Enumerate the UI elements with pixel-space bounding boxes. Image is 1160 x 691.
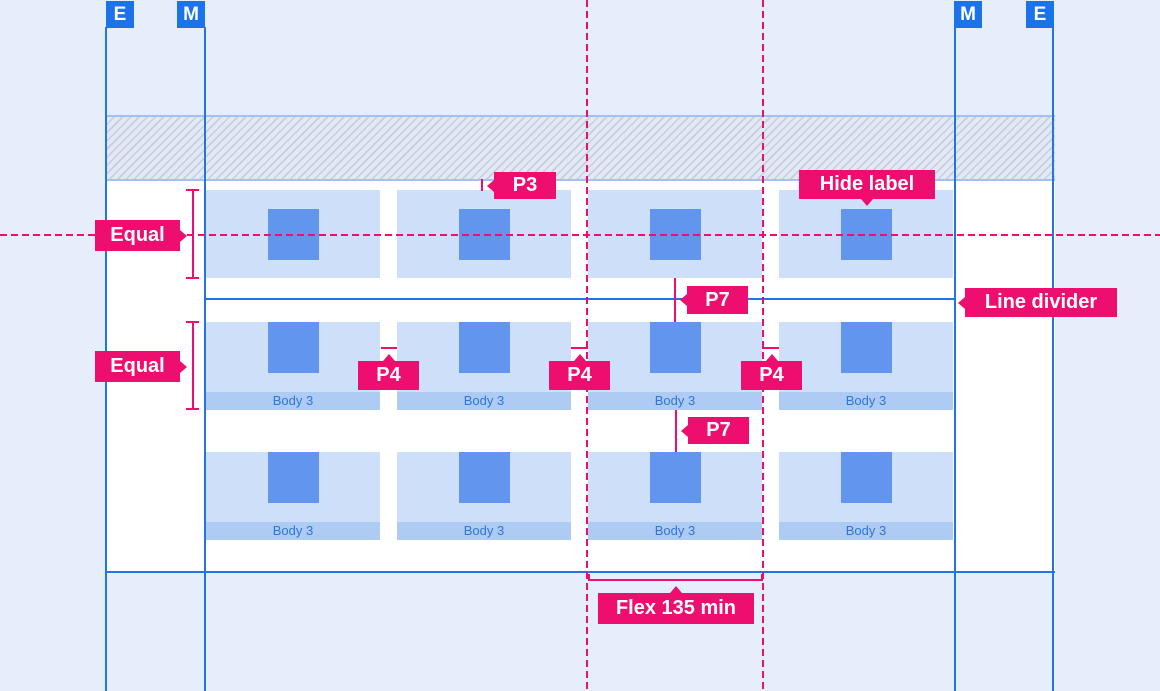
annotation-line-divider: Line divider <box>965 288 1117 317</box>
layout-spec-canvas: E M M E Body 3 Body 3 Body 3 Body 3 Body… <box>0 0 1160 691</box>
p7-measure-line-rowgap <box>675 410 677 452</box>
annotation-equal-top: Equal <box>95 220 180 251</box>
image-tile <box>268 322 319 373</box>
keyline-badge-e-left: E <box>106 1 134 28</box>
card-label: Body 3 <box>206 522 380 540</box>
image-tile <box>650 322 701 373</box>
measure-cap <box>186 189 199 191</box>
equal-measure-line-top <box>192 190 194 278</box>
card-label: Body 3 <box>779 392 953 410</box>
margin-keyline-left <box>204 27 206 691</box>
card-label: Body 3 <box>397 392 571 410</box>
vertical-guide-right <box>762 0 764 691</box>
flex-measure-bracket <box>588 579 763 581</box>
margin-keyline-right <box>954 27 956 691</box>
line-divider-rule <box>205 298 955 300</box>
equal-measure-line-bottom <box>192 322 194 410</box>
p4-measure-tick-2 <box>571 347 588 349</box>
p4-measure-tick-3 <box>762 347 779 349</box>
card: Body 3 <box>206 322 380 410</box>
card: Body 3 <box>588 452 762 540</box>
card-label: Body 3 <box>779 522 953 540</box>
keyline-badge-m-right: M <box>954 1 982 28</box>
keyline-badge-m-left: M <box>177 1 205 28</box>
p4-measure-tick-1 <box>381 347 397 349</box>
p7-measure-line-divider <box>674 278 676 322</box>
image-tile <box>650 452 701 503</box>
card: Body 3 <box>206 452 380 540</box>
card: Body 3 <box>588 322 762 410</box>
annotation-p4-gap-2: P4 <box>549 361 610 390</box>
edge-keyline-right <box>1052 27 1054 691</box>
annotation-equal-bottom: Equal <box>95 351 180 382</box>
card-label: Body 3 <box>206 392 380 410</box>
annotation-flex-135-min: Flex 135 min <box>598 593 754 624</box>
card: Body 3 <box>779 452 953 540</box>
image-tile <box>268 452 319 503</box>
annotation-hide-label: Hide label <box>799 170 935 199</box>
annotation-p7-row-gap: P7 <box>688 417 749 444</box>
image-tile <box>459 322 510 373</box>
p3-measure-tick <box>481 179 483 191</box>
measure-cap <box>186 277 199 279</box>
measure-cap <box>186 408 199 410</box>
keyline-badge-e-right: E <box>1026 1 1054 28</box>
annotation-p4-gap-1: P4 <box>358 361 419 390</box>
measure-cap <box>761 574 763 581</box>
annotation-p3: P3 <box>494 172 556 199</box>
card: Body 3 <box>779 322 953 410</box>
measure-cap <box>588 574 590 581</box>
image-tile <box>841 452 892 503</box>
annotation-p7-divider: P7 <box>687 286 748 314</box>
card: Body 3 <box>397 322 571 410</box>
panel-bottom-rule <box>105 571 1055 573</box>
vertical-guide-left <box>586 0 588 691</box>
card: Body 3 <box>397 452 571 540</box>
card-label: Body 3 <box>397 522 571 540</box>
annotation-p4-gap-3: P4 <box>741 361 802 390</box>
measure-cap <box>186 321 199 323</box>
card-label: Body 3 <box>588 522 762 540</box>
image-tile <box>841 322 892 373</box>
image-tile <box>459 452 510 503</box>
card-label: Body 3 <box>588 392 762 410</box>
